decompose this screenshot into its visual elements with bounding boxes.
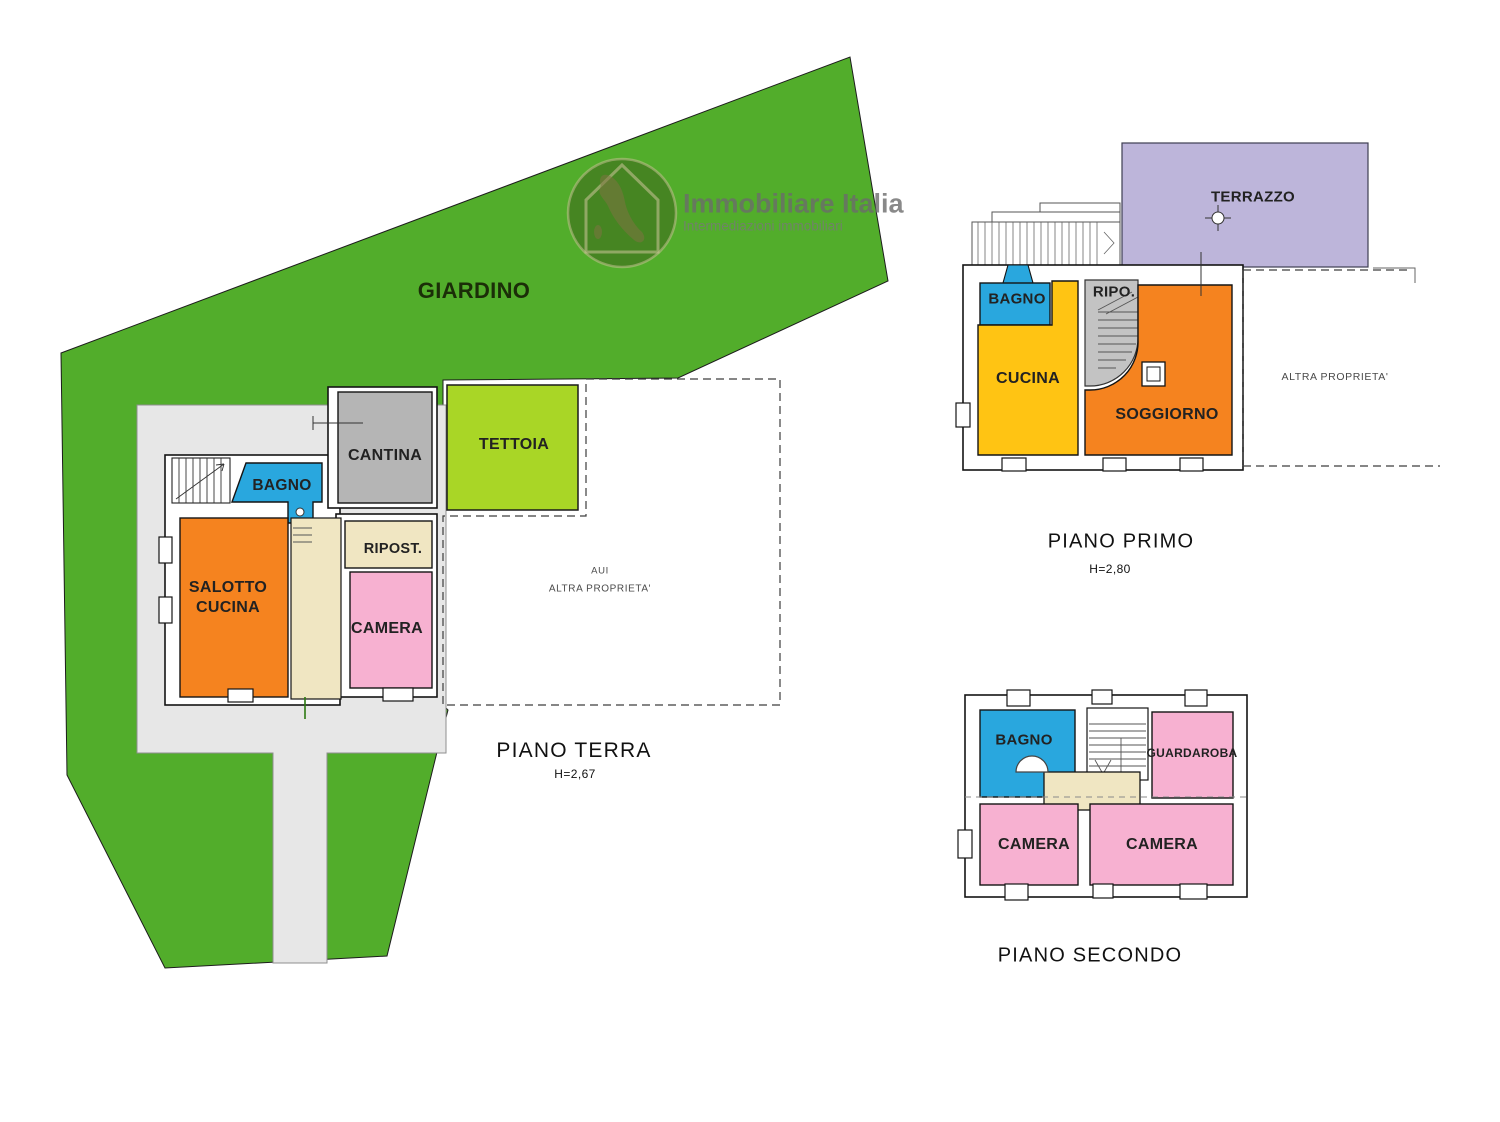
garden-label: GIARDINO [418, 278, 530, 304]
room-label-soggiorno: SOGGIORNO [1115, 406, 1218, 424]
room-label-bagno-first: BAGNO [988, 291, 1045, 308]
other-property-label-first: ALTRA PROPRIETA' [1282, 371, 1389, 383]
watermark-brand: Immobiliare Italia [683, 189, 904, 220]
floor-plan-canvas: GIARDINO Immobiliare Italia Intermediazi… [0, 0, 1500, 1122]
hallway-ground [291, 518, 341, 699]
ground-floor-title: PIANO TERRA [496, 739, 651, 763]
room-label-ripostiglio-first: RIPO. [1093, 284, 1135, 301]
room-label-tettoia: TETTOIA [479, 436, 549, 454]
second-floor-title: PIANO SECONDO [998, 945, 1183, 968]
first-floor-title: PIANO PRIMO [1048, 531, 1195, 554]
staircase-ground [172, 458, 230, 503]
room-label-ripostiglio-ground: RIPOST. [364, 541, 423, 557]
ground-floor-height: H=2,67 [554, 767, 595, 781]
other-property-label-ground: ALTRA PROPRIETA' [549, 584, 651, 595]
room-label-cantina: CANTINA [348, 447, 422, 465]
watermark-logo-icon [568, 159, 676, 267]
first-floor-height: H=2,80 [1089, 562, 1130, 576]
room-label-bagno-ground: BAGNO [252, 477, 311, 495]
room-label-camera-right: CAMERA [1126, 836, 1198, 854]
room-label-camera-ground: CAMERA [351, 620, 423, 638]
second-floor-plan [958, 690, 1247, 900]
sink-icon [296, 508, 304, 516]
room-label-camera-left: CAMERA [998, 836, 1070, 854]
floor-plan-drawing [0, 0, 1500, 1122]
shaft [1142, 362, 1165, 386]
stairwell-second [1087, 708, 1148, 780]
room-label-guardaroba: GUARDAROBA [1147, 746, 1238, 760]
other-property-label-aui: AUI [591, 566, 609, 577]
other-property-boundary-first [1243, 270, 1440, 466]
room-label-salotto: SALOTTO [189, 579, 267, 597]
room-label-bagno-second: BAGNO [995, 732, 1052, 749]
bagno-flue [1003, 265, 1033, 283]
balcony-hatch [972, 203, 1120, 265]
room-label-cucina: CUCINA [996, 370, 1060, 388]
room-label-terrazzo: TERRAZZO [1211, 189, 1295, 206]
watermark-tagline: Intermediazioni immobiliari [683, 219, 843, 234]
room-label-salotto-cucina: CUCINA [196, 599, 260, 617]
